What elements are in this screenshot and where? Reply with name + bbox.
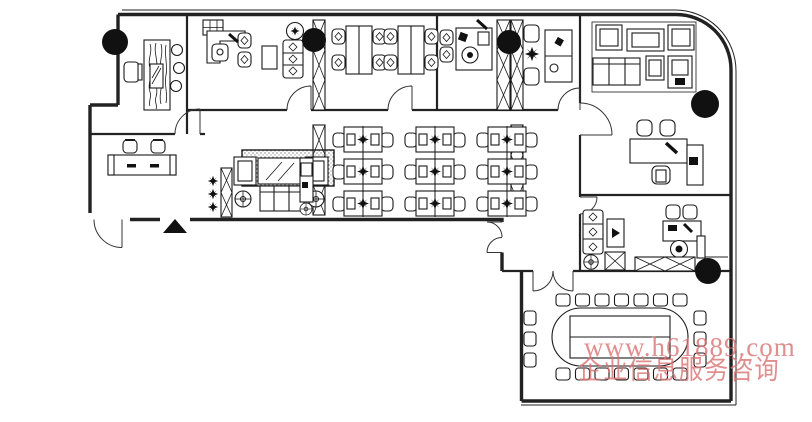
conference-chair: [673, 294, 687, 306]
chair: [381, 165, 393, 179]
conference-chair: [556, 368, 570, 380]
conference-chair: [615, 368, 629, 380]
floor-plan-svg: [0, 0, 812, 422]
floor-plan-canvas: www.h61889.com 企业信息服务咨询: [0, 0, 812, 422]
sofa: [260, 186, 304, 211]
conference-chair: [576, 294, 590, 306]
chair: [525, 197, 537, 211]
column-marker: [102, 29, 128, 55]
conference-chair: [634, 294, 648, 306]
conference-chair: [524, 332, 536, 346]
chair: [453, 133, 465, 147]
plant: [501, 198, 513, 210]
plant: [429, 198, 441, 210]
chair: [453, 165, 465, 179]
workstation-cluster: [333, 191, 393, 216]
round-table: [584, 255, 598, 269]
workstation-cluster: [405, 127, 465, 152]
sofa: [283, 40, 303, 78]
executive-office-furniture: [124, 40, 185, 110]
workstation-cluster: [477, 127, 537, 152]
entrance-marker: [163, 219, 187, 233]
desk: [630, 139, 687, 163]
reception-desk: [108, 155, 176, 175]
sofa: [593, 58, 640, 85]
plant: [357, 166, 369, 178]
conference-chair: [595, 294, 609, 306]
column-marker: [497, 30, 521, 54]
column-marker: [695, 258, 721, 284]
conference-chair: [694, 311, 706, 325]
chair: [477, 133, 489, 147]
guest-chair: [172, 45, 183, 56]
conference-chair: [654, 294, 668, 306]
reception-furniture: [108, 140, 176, 175]
guest-chair: [666, 205, 680, 219]
conference-chair: [673, 368, 687, 380]
conference-chair: [524, 353, 536, 367]
executive-office-2-furniture: [583, 205, 705, 271]
office-chair: [652, 166, 670, 184]
chair: [333, 133, 345, 147]
open-office-workstations: [333, 126, 537, 217]
workstation-side-desk: [300, 158, 313, 215]
guest-chair: [660, 120, 675, 136]
workstation-cluster: [405, 159, 465, 184]
chair: [524, 25, 539, 42]
conference-chair: [556, 294, 570, 306]
chair: [525, 165, 537, 179]
chair: [333, 197, 345, 211]
chair: [123, 140, 137, 153]
guest-chair: [171, 81, 182, 92]
chair: [381, 197, 393, 211]
workstation-cluster: [477, 191, 537, 216]
chair: [477, 165, 489, 179]
guest-chair: [238, 52, 251, 67]
chair: [453, 197, 465, 211]
chair: [151, 140, 165, 153]
office-chair: [212, 44, 228, 61]
guest-chair: [174, 63, 185, 74]
credenza: [635, 257, 695, 271]
conference-chair: [595, 368, 609, 380]
workstation-cluster: [405, 191, 465, 216]
chair: [477, 197, 489, 211]
plant: [357, 134, 369, 146]
sofa: [583, 210, 603, 254]
workstation-cluster: [333, 127, 393, 152]
round-table: [235, 191, 251, 207]
guest-chair: [238, 33, 251, 48]
chair: [525, 133, 537, 147]
plant: [501, 134, 513, 146]
lounge-furniture: [592, 22, 696, 92]
conference-chair: [654, 368, 668, 380]
workstation-cluster: [477, 159, 537, 184]
office-d-furniture: [440, 20, 492, 70]
plant: [501, 166, 513, 178]
conference-chair: [694, 332, 706, 346]
chair: [381, 133, 393, 147]
coffee-table: [262, 46, 277, 69]
chair: [405, 197, 417, 211]
conference-chair: [694, 353, 706, 367]
chair: [405, 165, 417, 179]
office-c-furniture: [332, 26, 438, 74]
conference-chair: [615, 294, 629, 306]
chair: [405, 133, 417, 147]
chair: [524, 68, 539, 85]
conference-chair: [524, 311, 536, 325]
chair: [333, 165, 345, 179]
office-b-furniture: [203, 20, 304, 78]
column-marker: [691, 90, 719, 118]
plant: [357, 198, 369, 210]
plant: [429, 166, 441, 178]
conference-room-furniture: [552, 308, 688, 366]
guest-chair: [637, 120, 652, 136]
guest-chair: [683, 205, 697, 219]
office-e-furniture: [524, 25, 572, 85]
plant: [429, 134, 441, 146]
glass-table: [258, 158, 304, 184]
manager-office-furniture: [630, 120, 703, 185]
office-chair: [124, 62, 139, 82]
conference-chair: [634, 368, 648, 380]
door-arcs: [94, 86, 612, 291]
column-marker: [302, 28, 326, 52]
conference-chair: [576, 368, 590, 380]
structural-column: [221, 168, 232, 217]
workstation-cluster: [333, 159, 393, 184]
